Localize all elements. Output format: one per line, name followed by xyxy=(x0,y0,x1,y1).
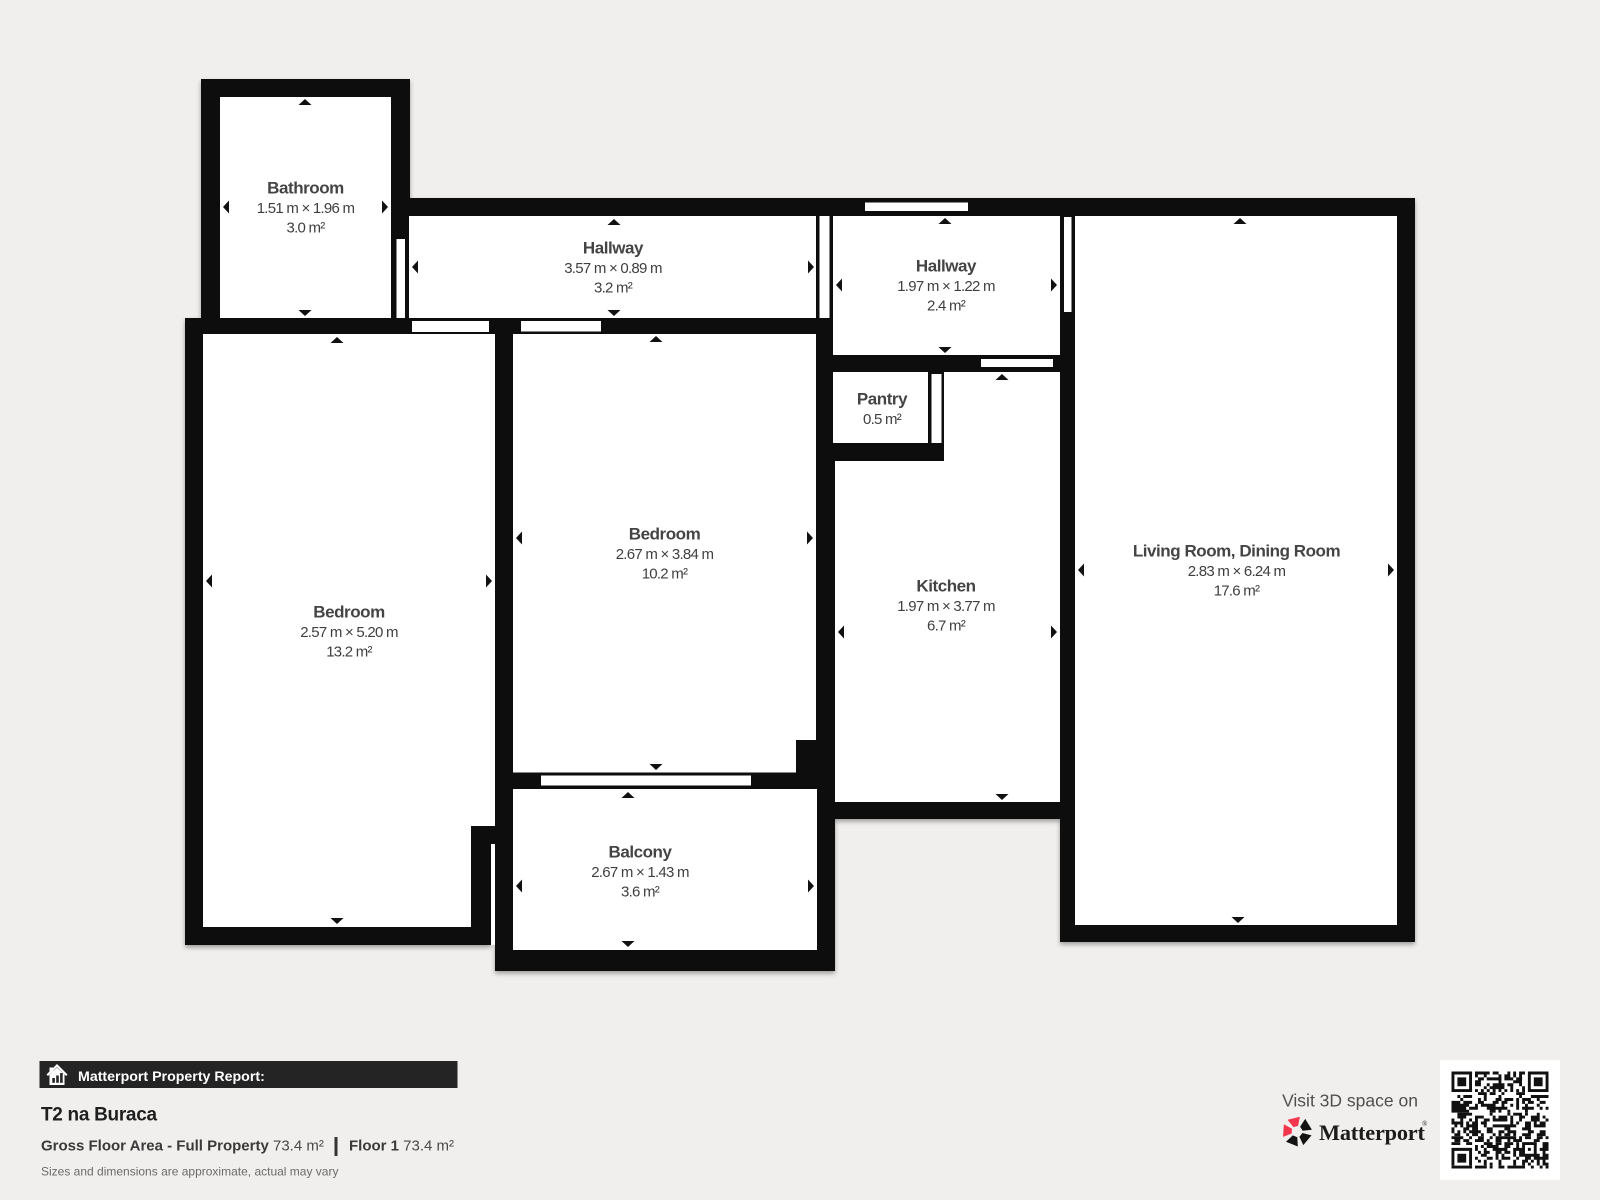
svg-text:Gross Floor Area - Full Proper: Gross Floor Area - Full Property 73.4 m² xyxy=(41,1138,324,1155)
svg-text:3.0 m²: 3.0 m² xyxy=(286,220,325,237)
svg-text:2.83 m × 6.24 m: 2.83 m × 6.24 m xyxy=(1188,563,1286,580)
svg-text:Hallway: Hallway xyxy=(583,239,644,258)
svg-text:Matterport: Matterport xyxy=(1319,1120,1425,1145)
svg-text:1.51 m × 1.96 m: 1.51 m × 1.96 m xyxy=(257,200,355,217)
svg-text:Visit 3D space on: Visit 3D space on xyxy=(1282,1091,1418,1111)
svg-text:Kitchen: Kitchen xyxy=(916,577,975,596)
svg-text:T2 na Buraca: T2 na Buraca xyxy=(41,1105,157,1126)
svg-text:6.7 m²: 6.7 m² xyxy=(927,618,966,635)
svg-text:Sizes and dimensions are appro: Sizes and dimensions are approximate, ac… xyxy=(41,1165,338,1179)
svg-text:Balcony: Balcony xyxy=(609,843,673,862)
svg-text:Pantry: Pantry xyxy=(857,390,908,409)
svg-text:2.57 m × 5.20 m: 2.57 m × 5.20 m xyxy=(300,624,398,641)
svg-text:Bedroom: Bedroom xyxy=(313,603,385,622)
svg-text:1.97 m × 1.22 m: 1.97 m × 1.22 m xyxy=(897,278,995,295)
svg-text:2.4 m²: 2.4 m² xyxy=(927,298,966,315)
svg-text:2.67 m × 3.84 m: 2.67 m × 3.84 m xyxy=(616,546,714,563)
svg-text:Hallway: Hallway xyxy=(916,257,977,276)
svg-text:10.2 m²: 10.2 m² xyxy=(642,566,688,583)
svg-text:Bathroom: Bathroom xyxy=(267,179,344,198)
svg-text:3.57 m × 0.89 m: 3.57 m × 0.89 m xyxy=(564,260,662,277)
svg-text:Floor 1 73.4 m²: Floor 1 73.4 m² xyxy=(349,1138,454,1155)
svg-text:®: ® xyxy=(1422,1120,1428,1128)
svg-text:13.2 m²: 13.2 m² xyxy=(326,644,372,661)
svg-text:3.6 m²: 3.6 m² xyxy=(621,884,660,901)
svg-text:Living Room, Dining Room: Living Room, Dining Room xyxy=(1133,542,1341,561)
svg-text:3.2 m²: 3.2 m² xyxy=(594,280,633,297)
svg-text:2.67 m × 1.43 m: 2.67 m × 1.43 m xyxy=(591,864,689,881)
svg-text:Matterport Property Report:: Matterport Property Report: xyxy=(78,1069,265,1085)
svg-text:0.5 m²: 0.5 m² xyxy=(863,411,902,428)
svg-text:Bedroom: Bedroom xyxy=(629,525,701,544)
svg-text:17.6 m²: 17.6 m² xyxy=(1214,583,1260,600)
svg-text:1.97 m × 3.77 m: 1.97 m × 3.77 m xyxy=(897,598,995,615)
